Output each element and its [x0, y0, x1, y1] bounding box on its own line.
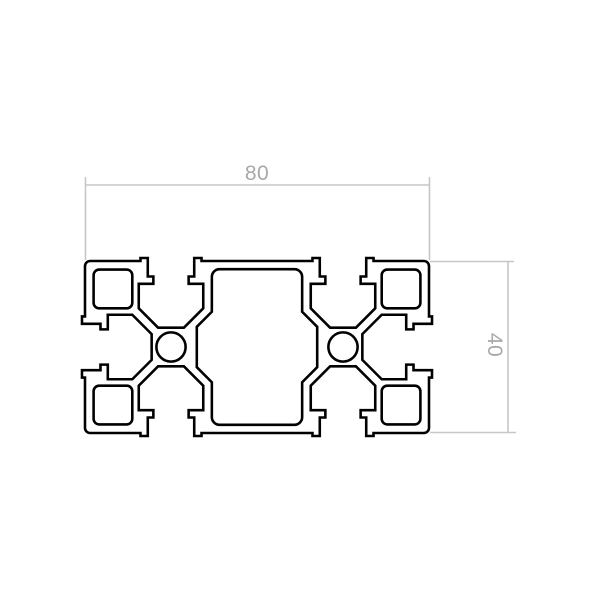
profile-outline — [82, 258, 432, 436]
profile-cross-section — [82, 258, 432, 436]
corner-chamber-bottom-left — [94, 386, 133, 425]
corner-chamber-top-left — [94, 270, 133, 309]
height-dimension-label: 40 — [483, 333, 506, 357]
corner-chamber-bottom-right — [382, 386, 421, 425]
corner-chamber-top-right — [382, 270, 421, 309]
center-bore-right — [328, 332, 357, 361]
central-cavity — [197, 269, 317, 425]
center-bore-left — [156, 332, 185, 361]
dimension-lines-group — [86, 177, 517, 433]
width-dimension-label: 80 — [245, 162, 269, 185]
drawing-canvas: 80 40 — [0, 0, 600, 600]
profile-technical-drawing: 80 40 — [0, 0, 600, 600]
